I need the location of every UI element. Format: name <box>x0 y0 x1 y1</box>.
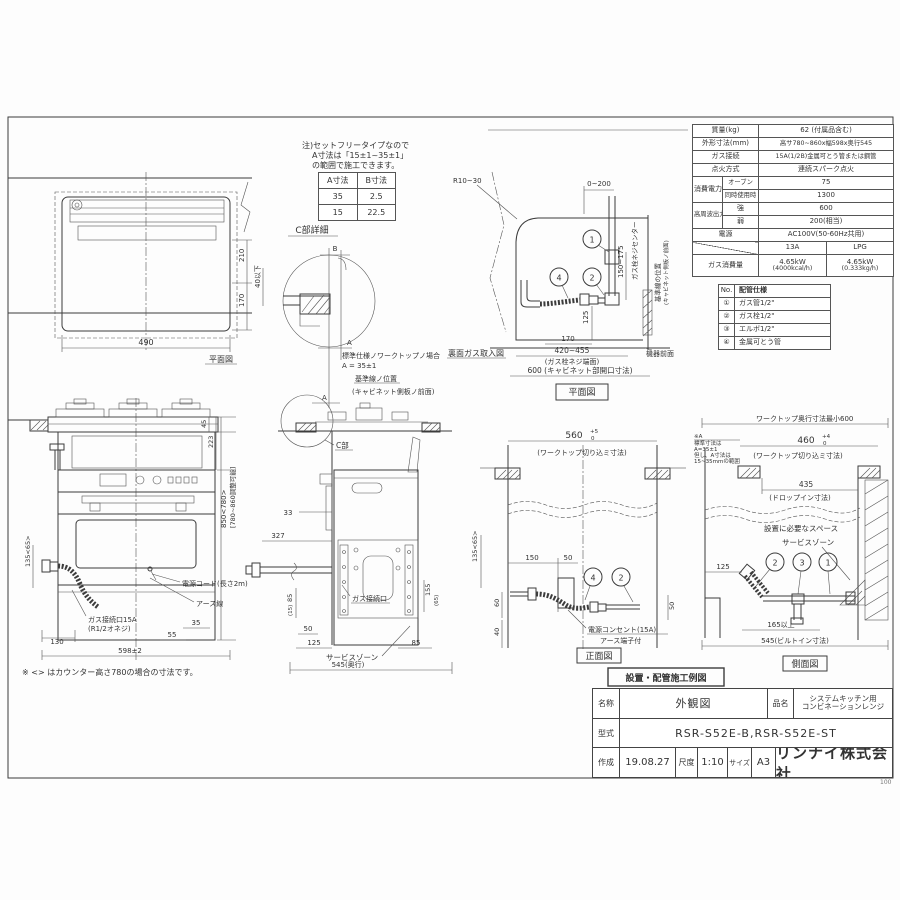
piping-row4-label: 金属可とう管 <box>735 337 831 350</box>
dim-15: (15) <box>288 605 294 616</box>
dim-460: 460 <box>797 436 814 446</box>
gas-center-label: ガス栓ネジセンター <box>630 222 639 281</box>
piping-table: No. 配管仕様 ① ガス管1/2" ② ガス栓1/2" ③ エルボ1/2" ④… <box>718 284 831 350</box>
dim-327: 327 <box>271 532 284 540</box>
spec-col-lpg: LPG <box>827 242 894 255</box>
title-block-row3: 作成 19.08.27 尺度 1:10 サイズ A3 リンナイ株式会社 <box>593 747 892 777</box>
plan-left-view: 490 210 170 平面図 <box>8 172 252 364</box>
dim-a2: A <box>322 394 327 402</box>
service-zone-label2: サービスゾーン <box>782 538 834 547</box>
spec-table: 質量(kg) 62 (付属品含む) 外形寸法(mm) 高サ780~860x幅59… <box>692 124 894 277</box>
spec-col-13a: 13A <box>759 242 827 255</box>
ref-line-label: 基準線の位置 <box>653 263 662 303</box>
dim-210: 210 <box>238 249 246 262</box>
c-section-label: C部 <box>336 440 349 450</box>
outlet-earth-label: アース端子付 <box>600 636 641 645</box>
setfree-note-line1: 注)セットフリータイプなので <box>302 141 409 151</box>
spec-mass-value: 62 (付属品含む) <box>759 125 894 138</box>
dim-65: (65) <box>434 595 440 606</box>
ab-header-a: A寸法 <box>319 173 358 189</box>
dim-560-tol-bot: 0 <box>591 436 595 442</box>
date-label: 作成 <box>593 748 619 777</box>
space-label: 設置に必要なスペース <box>764 523 838 533</box>
spec-gas-value: 15A(1/2B)金属可とう管または鋼管 <box>759 151 894 164</box>
spec-ignition-value: 連続スパーク点火 <box>759 164 894 177</box>
callout-4b: 4 <box>590 574 595 583</box>
gas-port-side-label: ガス接続口 <box>352 594 387 603</box>
dim-150: 150 <box>525 554 538 562</box>
scale-value: 1:10 <box>697 748 727 777</box>
dim-40: 40以下 <box>254 265 262 288</box>
drawing-name: 外観図 <box>619 689 767 718</box>
drawing-sheet: 490 210 170 平面図 C部詳細 B A 40以下 A 標準 <box>0 0 900 900</box>
worktop-depth-label: ワークトップ奥行寸法最小600 <box>756 414 853 423</box>
spec-dim-value: 高サ780~860x幅598x奥行545 <box>759 138 894 151</box>
note-a4: 但し、A寸法は <box>694 451 731 459</box>
dim-850-note: [780~860調整可能] <box>228 467 237 528</box>
note-a5: 15~35mmの範囲 <box>694 457 740 465</box>
rear-plan-title: 平面図 <box>568 387 595 398</box>
setfree-note-line2: A寸法は「15±1~35±1」 <box>302 151 409 161</box>
c-note-std2: A = 35±1 <box>342 362 376 370</box>
item-name: システムキッチン用 コンビネーションレンジ <box>793 689 892 718</box>
spec-hf2-value: 200(相当) <box>759 216 894 229</box>
piping-row4-no: ④ <box>719 337 735 350</box>
spec-mass-label: 質量(kg) <box>693 125 759 138</box>
cord-label: 電源コード(長さ2m) <box>182 579 248 588</box>
rear-gas-title: 裏面ガス取入図 <box>448 348 504 358</box>
dim-560-tol-top: +5 <box>590 429 599 435</box>
company-name: リンナイ株式会社 <box>775 748 892 777</box>
spec-power2-label: 同時使用時 <box>723 190 759 203</box>
dim-545-depth: 545(奥行) <box>332 660 365 669</box>
dim-165: 165以上 <box>767 620 794 629</box>
piping-row1-no: ① <box>719 298 735 311</box>
dim-223: 223 <box>207 436 215 448</box>
piping-row3-no: ③ <box>719 324 735 337</box>
dim-55: 55 <box>168 631 177 639</box>
dim-170b: 170 <box>561 335 574 343</box>
dim-545-builtin: 545(ビルトイン寸法) <box>761 636 829 645</box>
gas-port-label1: ガス接続口15A <box>88 615 137 624</box>
spec-source-value: AC100V(50-60Hz共用) <box>759 229 894 242</box>
side-view: C部 <box>246 395 452 674</box>
dim-50b: 50 <box>668 602 676 610</box>
size-label: サイズ <box>727 748 751 777</box>
ab-r2c1: 15 <box>319 205 358 221</box>
c-detail-view: C部詳細 B A 40以下 A 標準仕様ノワークトップノ場合 裏面ガス取入図 A… <box>254 224 506 408</box>
spec-hf2-label: 弱 <box>723 216 759 229</box>
piping-title: 配管仕様 <box>735 285 831 298</box>
dim-560: 560 <box>565 431 582 441</box>
c-note-std1: 標準仕様ノワークトップノ場合 <box>342 351 440 360</box>
dim-155: 155 <box>424 584 432 596</box>
cutout-note: (ワークトップ切り込ミ寸法) <box>537 448 627 457</box>
callout-3: 3 <box>799 559 804 568</box>
counter-note: ※ <> はカウンター高さ780の場合の寸法です。 <box>22 668 198 678</box>
dim-85l: 85 <box>286 594 294 602</box>
ref-line-label2: (キャビネット側板ノ前面) <box>662 240 670 305</box>
spec-power-label: 消費電力(W) <box>693 177 723 203</box>
dim-45: 45 <box>200 420 208 428</box>
piping-row3-label: エルボ1/2" <box>735 324 831 337</box>
scale-label: 尺度 <box>675 748 697 777</box>
c-ref2: (キャビネット側板ノ前面) <box>352 387 435 396</box>
dim-435: 435 <box>799 480 814 489</box>
ab-table: A寸法 B寸法 35 2.5 15 22.5 <box>318 172 396 221</box>
piping-row2-no: ② <box>719 311 735 324</box>
item-name-line2: コンビネーションレンジ <box>802 703 884 712</box>
callout-2: 2 <box>589 274 594 283</box>
dim-60: 60 <box>493 599 501 607</box>
setfree-note: 注)セットフリータイプなので A寸法は「15±1~35±1」 の範囲で施工できま… <box>302 141 409 171</box>
callout-1: 1 <box>589 236 594 245</box>
dim-460-tol-bot: 0 <box>823 441 827 447</box>
dim-0-200: 0~200 <box>587 180 611 188</box>
dim-850: 850<780> <box>220 489 228 528</box>
c-detail-title: C部詳細 <box>295 224 328 236</box>
rear-gas-view: 0~200 1 2 4 150~175 ガス栓ネジセンター 基準線の位置 (キャ… <box>453 130 688 400</box>
burners <box>56 399 210 417</box>
dim-490: 490 <box>138 338 153 347</box>
item-label: 品名 <box>767 689 793 718</box>
spec-source-label: 電源 <box>693 229 759 242</box>
install-front-title: 正面図 <box>585 651 612 662</box>
size-value: A3 <box>751 748 775 777</box>
spec-ignition-label: 点火方式 <box>693 164 759 177</box>
dim-125-side: 125 <box>307 639 320 647</box>
model-value: RSR-S52E-B,RSR-S52E-ST <box>619 719 892 748</box>
front-face-label: 機器前面 <box>646 349 674 358</box>
install-front-view: 560 +5 0 (ワークトップ切り込ミ寸法) 135<65> 150 50 4… <box>471 429 686 663</box>
dim-35: 35 <box>192 619 201 627</box>
dim-50-side: 50 <box>304 625 313 633</box>
dim-50a: 50 <box>564 554 573 562</box>
name-label: 名称 <box>593 689 619 718</box>
dim-135-65b: 135<65> <box>471 530 479 562</box>
dim-420-455: 420~455 <box>555 346 590 355</box>
date-value: 19.08.27 <box>619 748 675 777</box>
title-block-row2: 型式 RSR-S52E-B,RSR-S52E-ST <box>593 718 892 748</box>
spec-hf1-label: 強 <box>723 203 759 216</box>
dim-r10-30: R10~30 <box>453 177 482 185</box>
spec-diagonal-cell <box>693 242 759 255</box>
piping-row1-label: ガス管1/2" <box>735 298 831 311</box>
piping-no-header: No. <box>719 285 735 298</box>
install-example-label: 設置・配管施工例図 <box>608 668 724 686</box>
callout-2c: 2 <box>772 559 777 568</box>
spec-gasuse-label: ガス消費量 <box>693 255 759 277</box>
dim-33: 33 <box>284 509 293 517</box>
dim-600: 600 (キャビネット部開口寸法) <box>527 365 632 375</box>
dim-85r: 85 <box>412 639 421 647</box>
piping-row2-label: ガス栓1/2" <box>735 311 831 324</box>
setfree-note-line3: の範囲で施工できます。 <box>302 161 409 171</box>
earth-label: アース線 <box>196 599 223 608</box>
note-a1: ※A <box>694 434 703 440</box>
model-label: 型式 <box>593 719 619 748</box>
sheet-number: 100 <box>880 779 891 786</box>
dim-598: 598±2 <box>118 647 142 655</box>
spec-gasuse-lpg-kg: (0.333kg/h) <box>828 266 892 273</box>
outlet-label: 電源コンセント(15A) <box>588 625 656 634</box>
install-side-view: ワークトップ奥行寸法最小600 460 +4 0 (ワークトップ切り込ミ寸法) … <box>694 414 888 671</box>
dim-135-65: 135<65> <box>24 535 32 567</box>
callout-4: 4 <box>556 274 561 283</box>
plan-left-title: 平面図 <box>209 355 233 364</box>
dim-170: 170 <box>238 294 246 307</box>
spec-hf-label: 高周波出力(W) <box>693 203 723 229</box>
dim-420-note: (ガス栓ネジ端面) <box>545 357 600 366</box>
spec-gasuse-13a-kcal: (4000kcal/h) <box>760 266 825 273</box>
dim-125: 125 <box>582 311 590 324</box>
callout-1b: 1 <box>825 559 830 568</box>
spec-gas-label: ガス接続 <box>693 151 759 164</box>
spec-gasuse-13a: 4.65kW (4000kcal/h) <box>759 255 827 277</box>
dim-40: 40 <box>493 628 501 636</box>
front-view: 電源コード(長さ2m) アース線 ガス接続口15A (R1/2オネジ) 130 … <box>8 398 248 660</box>
gas-port-label2: (R1/2オネジ) <box>88 625 131 633</box>
title-block: 名称 外観図 品名 システムキッチン用 コンビネーションレンジ 型式 RSR-S… <box>592 688 893 778</box>
spec-gasuse-lpg: 4.65kW (0.333kg/h) <box>827 255 894 277</box>
dim-150-175: 150~175 <box>617 245 625 278</box>
spec-power1-value: 75 <box>759 177 894 190</box>
install-example-text: 設置・配管施工例図 <box>625 672 706 684</box>
ab-r1c2: 2.5 <box>357 189 396 205</box>
spec-hf1-value: 600 <box>759 203 894 216</box>
dim-125b: 125 <box>716 563 729 571</box>
callout-2b: 2 <box>618 574 623 583</box>
dropin-label: (ドロップイン寸法) <box>769 493 831 502</box>
ab-header-b: B寸法 <box>357 173 396 189</box>
ab-r1c1: 35 <box>319 189 358 205</box>
title-block-row1: 名称 外観図 品名 システムキッチン用 コンビネーションレンジ <box>593 689 892 718</box>
cutout-note-side: (ワークトップ切り込ミ寸法) <box>753 451 843 460</box>
ab-r2c2: 22.5 <box>357 205 396 221</box>
spec-power2-value: 1300 <box>759 190 894 203</box>
dim-b: B <box>333 245 338 253</box>
spec-power1-label: オーブン <box>723 177 759 190</box>
dim-a: A <box>347 339 352 347</box>
spec-dim-label: 外形寸法(mm) <box>693 138 759 151</box>
dim-460-tol-top: +4 <box>822 434 831 440</box>
dim-130: 130 <box>50 638 63 646</box>
install-side-title: 側面図 <box>791 658 818 670</box>
c-ref1: 基準線ノ位置 <box>355 374 397 383</box>
